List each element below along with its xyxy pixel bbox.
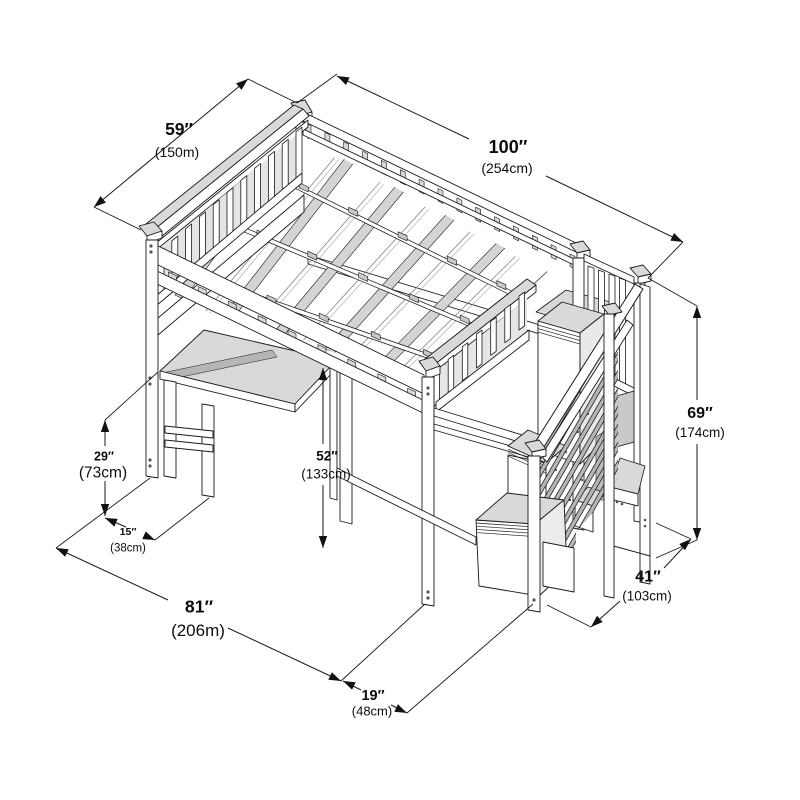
svg-text:81″: 81″ xyxy=(185,597,214,617)
svg-text:(48cm): (48cm) xyxy=(352,704,392,719)
svg-text:29″: 29″ xyxy=(94,450,114,464)
svg-text:(254cm): (254cm) xyxy=(481,160,532,176)
svg-text:69″: 69″ xyxy=(687,405,713,422)
svg-text:(133cm): (133cm) xyxy=(301,467,351,482)
svg-text:(206m): (206m) xyxy=(171,621,225,640)
svg-text:52″: 52″ xyxy=(316,449,338,464)
svg-text:15″: 15″ xyxy=(120,526,137,538)
svg-text:(174cm): (174cm) xyxy=(675,425,725,440)
svg-text:59″: 59″ xyxy=(165,119,193,139)
svg-text:(103cm): (103cm) xyxy=(622,589,672,604)
svg-text:(150m): (150m) xyxy=(155,144,199,160)
svg-text:(73cm): (73cm) xyxy=(79,465,127,482)
svg-text:100″: 100″ xyxy=(489,137,528,157)
svg-text:41″: 41″ xyxy=(635,569,661,586)
svg-text:(38cm): (38cm) xyxy=(110,543,146,555)
svg-text:19″: 19″ xyxy=(361,688,384,704)
